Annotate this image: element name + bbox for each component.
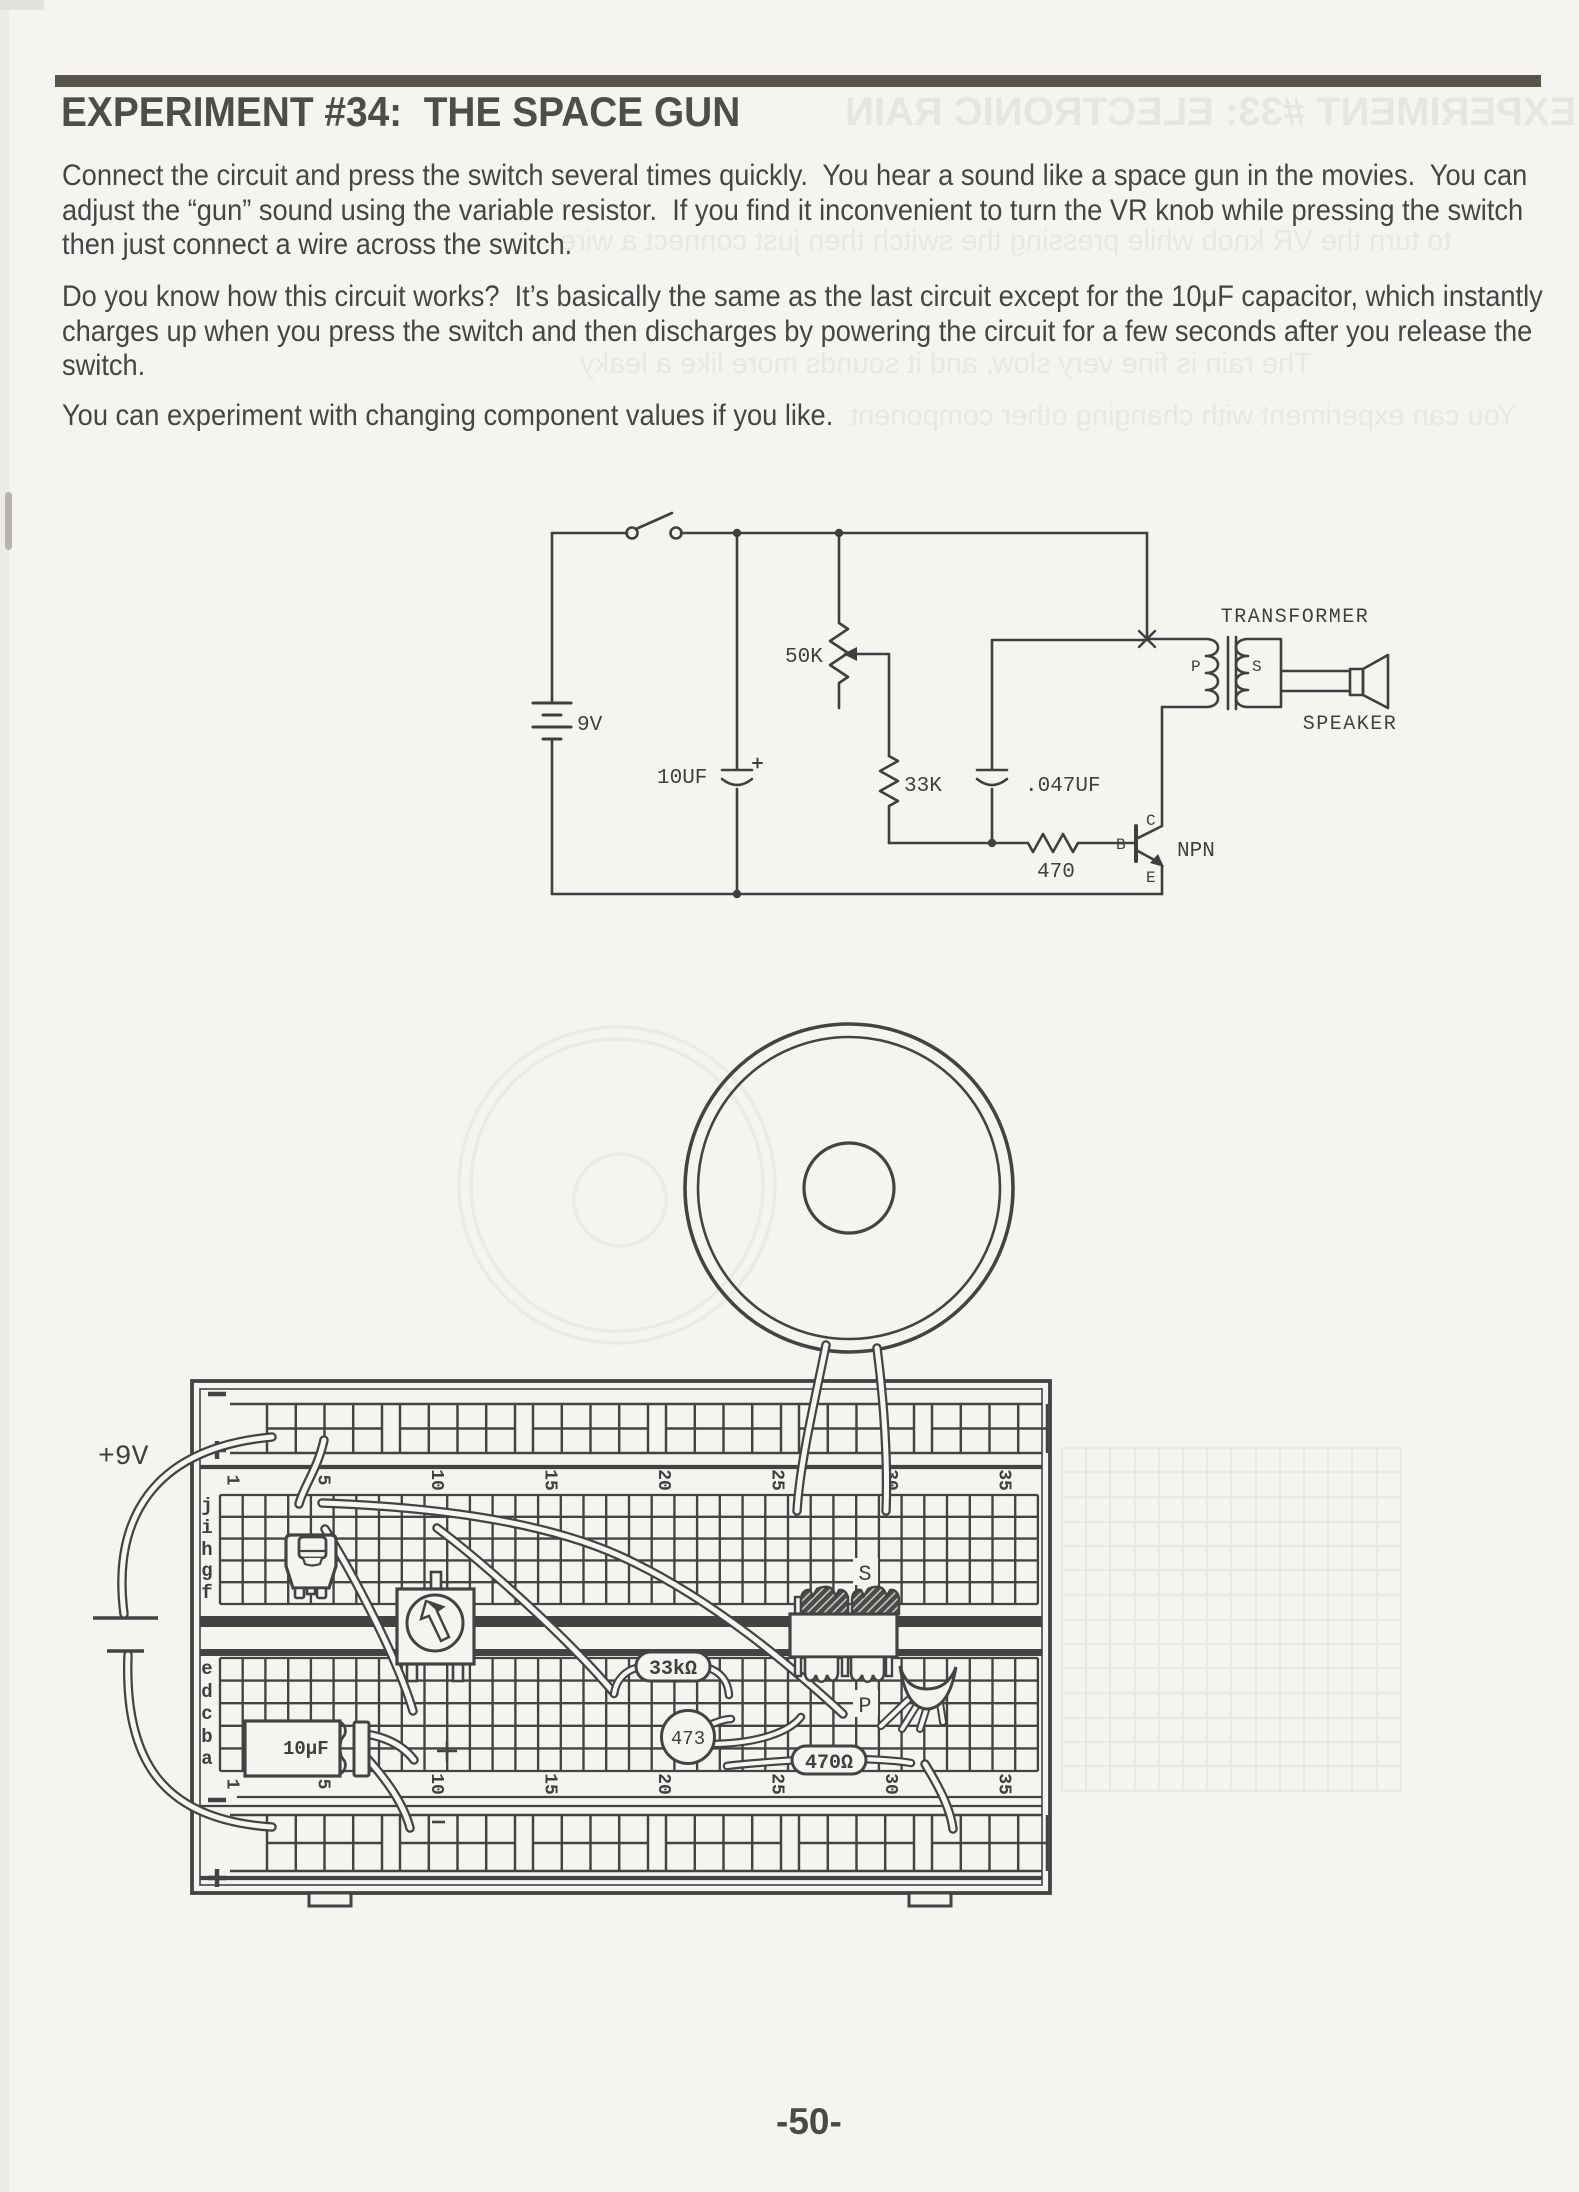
svg-text:+9V: +9V: [98, 1442, 149, 1473]
svg-text:h: h: [201, 1539, 212, 1561]
svg-text:g: g: [201, 1560, 212, 1582]
svg-text:15: 15: [539, 1469, 559, 1491]
svg-text:1: 1: [222, 1779, 242, 1790]
svg-text:25: 25: [766, 1773, 786, 1795]
svg-text:P: P: [858, 1694, 871, 1719]
svg-text:470: 470: [1037, 861, 1075, 884]
svg-text:20: 20: [653, 1469, 673, 1491]
svg-text:10μF: 10μF: [283, 1738, 329, 1760]
svg-text:C: C: [1146, 812, 1156, 830]
svg-text:c: c: [201, 1703, 212, 1725]
svg-text:1: 1: [222, 1475, 242, 1486]
svg-text:P: P: [1191, 658, 1201, 676]
svg-text:33kΩ: 33kΩ: [649, 1658, 697, 1681]
svg-text:d: d: [201, 1681, 212, 1703]
svg-text:10: 10: [426, 1773, 446, 1795]
svg-text:.047UF: .047UF: [1025, 775, 1101, 798]
svg-text:TRANSFORMER: TRANSFORMER: [1221, 606, 1370, 629]
svg-text:E: E: [1146, 869, 1156, 887]
svg-text:i: i: [201, 1517, 212, 1539]
svg-text:e: e: [201, 1658, 212, 1680]
svg-text:5: 5: [312, 1779, 332, 1790]
svg-text:15: 15: [539, 1773, 559, 1795]
svg-text:NPN: NPN: [1177, 840, 1215, 863]
svg-text:SPEAKER: SPEAKER: [1303, 713, 1398, 736]
svg-text:35: 35: [993, 1469, 1013, 1491]
svg-text:50K: 50K: [785, 646, 823, 669]
svg-text:B: B: [1116, 836, 1126, 854]
svg-text:10UF: 10UF: [657, 767, 707, 790]
svg-text:9V: 9V: [577, 714, 603, 737]
svg-text:33K: 33K: [904, 775, 942, 798]
svg-text:470Ω: 470Ω: [805, 1752, 853, 1775]
svg-text:473: 473: [671, 1728, 705, 1750]
svg-text:a: a: [201, 1748, 212, 1770]
svg-text:30: 30: [880, 1773, 900, 1795]
svg-text:10: 10: [426, 1469, 446, 1491]
svg-text:25: 25: [766, 1469, 786, 1491]
svg-text:20: 20: [653, 1773, 673, 1795]
svg-text:f: f: [201, 1582, 212, 1604]
svg-text:35: 35: [993, 1773, 1013, 1795]
svg-text:S: S: [1252, 658, 1262, 676]
svg-text:b: b: [201, 1726, 212, 1748]
svg-text:S: S: [858, 1562, 871, 1587]
svg-text:j: j: [201, 1495, 212, 1517]
